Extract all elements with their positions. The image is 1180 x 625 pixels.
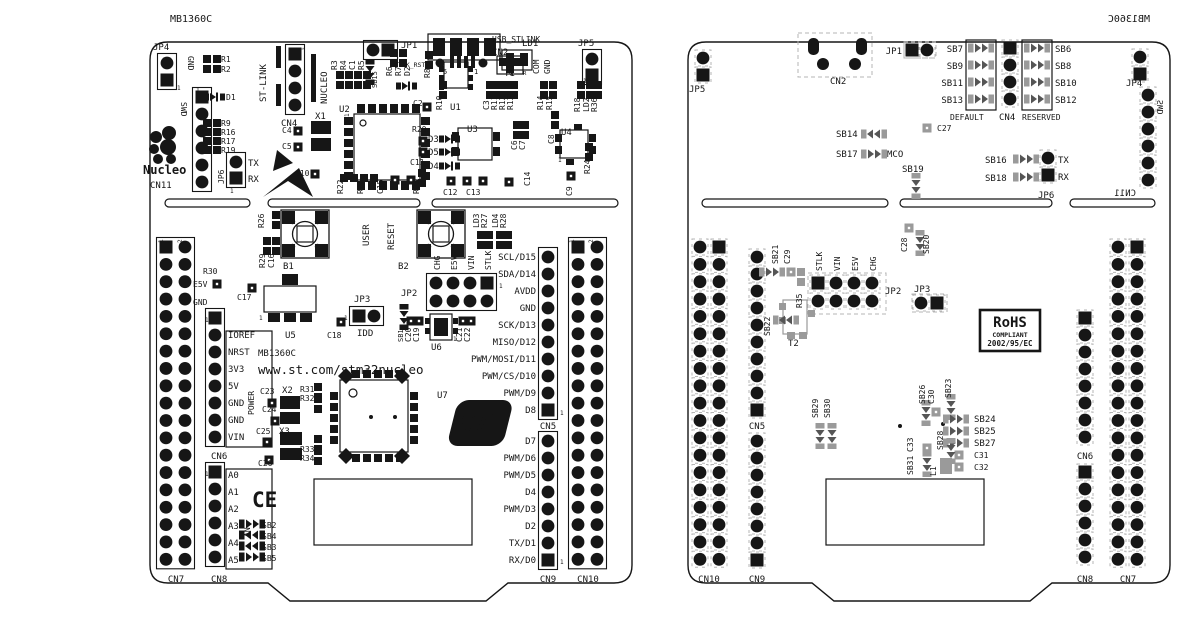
silk-label: 5V <box>228 382 239 392</box>
pin-hole <box>751 537 764 550</box>
component-shape <box>344 117 353 125</box>
silk-label: R30 <box>203 267 218 276</box>
silk-label: CN2 <box>492 48 508 58</box>
silk-label: RESET <box>387 222 397 250</box>
silk-label: 1 <box>177 85 181 92</box>
component-shape <box>493 147 500 156</box>
pin-hole <box>160 501 173 514</box>
capacitor-pad-icon <box>415 317 424 326</box>
pad-dot <box>462 320 464 322</box>
sb-pad <box>816 444 825 450</box>
pin-hole <box>866 295 879 308</box>
res-pad <box>521 121 529 129</box>
silk-label: C25 <box>256 427 271 436</box>
res-pad <box>314 447 322 455</box>
silk-label: D4 <box>525 488 536 498</box>
silk-label: D7 <box>525 437 536 447</box>
silk-label: GND <box>193 298 208 307</box>
capacitor-pad-icon <box>391 176 400 185</box>
component-shape <box>385 454 393 462</box>
board-slot <box>268 199 420 207</box>
component-shape <box>808 38 819 55</box>
pin-hole <box>179 501 192 514</box>
diode-pad <box>455 136 460 143</box>
component-shape <box>468 84 473 90</box>
pin-hole <box>591 258 604 271</box>
silk-label: SB9 <box>947 62 963 72</box>
pin-hole <box>289 99 302 112</box>
component-shape <box>453 318 458 324</box>
sb-pad <box>1024 44 1030 53</box>
pin-hole <box>713 345 726 358</box>
res-pad <box>486 81 494 89</box>
pin-1-square <box>931 297 944 310</box>
component-shape <box>555 146 562 154</box>
capacitor-pad-icon <box>423 103 432 112</box>
pin-1-square <box>906 44 919 57</box>
board-ref-label: MB1360C <box>258 349 296 359</box>
silk-label: R2 <box>221 65 231 74</box>
silk-label: X2 <box>282 386 293 396</box>
pin-hole <box>179 397 192 410</box>
pin-hole <box>179 536 192 549</box>
sb-pad <box>861 150 867 159</box>
pin-hole <box>572 379 585 392</box>
pad-dot <box>216 283 218 285</box>
silk-label: R19 <box>221 146 236 155</box>
res-pad <box>345 71 353 79</box>
pin-hole <box>591 362 604 375</box>
silk-label: A2 <box>228 505 239 515</box>
pin-hole <box>713 327 726 340</box>
silk-label: R21 <box>356 179 365 194</box>
pin-hole <box>713 466 726 479</box>
silk-label: 2 <box>588 239 595 243</box>
silk-label: C33 <box>906 437 915 452</box>
pad-dot <box>926 447 928 449</box>
silk-label: VIN <box>228 433 244 443</box>
button-pad <box>315 211 328 224</box>
silk-label: 1 <box>558 157 562 164</box>
pin-hole <box>289 65 302 78</box>
sb-pad <box>828 444 837 450</box>
silk-label: 1 <box>196 87 200 94</box>
pin-hole <box>542 469 555 482</box>
pin-hole <box>542 435 555 448</box>
pad-dot <box>271 402 273 404</box>
pin-hole <box>694 449 707 462</box>
silk-label: E5V <box>193 280 208 289</box>
pin-hole <box>179 466 192 479</box>
pin-hole <box>694 397 707 410</box>
silk-label: SB2 <box>262 521 277 530</box>
pin-hole <box>1131 466 1144 479</box>
component-shape <box>344 161 353 169</box>
component-dot <box>369 415 373 419</box>
silk-label: CN7 <box>1120 575 1136 585</box>
res-pad <box>354 81 362 89</box>
component-shape <box>434 318 448 336</box>
diode-bar <box>451 162 453 171</box>
pad-dot <box>426 106 428 108</box>
pad-dot <box>274 420 276 422</box>
sb-pad <box>968 78 974 87</box>
pin-hole <box>591 553 604 566</box>
component-shape <box>357 104 365 113</box>
pin-hole <box>1079 346 1092 359</box>
component-dot <box>162 126 176 140</box>
pin-hole <box>430 295 443 308</box>
pad-dot <box>466 180 468 182</box>
component-shape <box>330 425 338 433</box>
component-shape <box>276 84 281 106</box>
pin-1-square <box>481 277 494 290</box>
res-pad <box>213 146 221 154</box>
pin-hole <box>1112 536 1125 549</box>
silk-label: C14 <box>523 171 532 186</box>
pin-hole <box>751 353 764 366</box>
pin-hole <box>591 449 604 462</box>
silk-label: C24 <box>262 405 277 414</box>
board-url-label: www.st.com/stm32nucleo <box>258 362 424 377</box>
capacitor-pad-icon <box>479 177 488 186</box>
silk-label: C7 <box>518 140 527 150</box>
component-shape <box>799 332 807 339</box>
pad-dot <box>422 151 424 153</box>
pin-hole <box>1131 293 1144 306</box>
silk-label: SB19 <box>902 165 924 175</box>
component-shape <box>344 139 353 147</box>
pin-hole <box>713 397 726 410</box>
silk-label: PWM/D9 <box>503 389 536 399</box>
pin-hole <box>591 518 604 531</box>
silk-label: R4 <box>339 60 348 70</box>
pin-hole <box>542 486 555 499</box>
silk-label: CN8 <box>1077 575 1093 585</box>
silk-label: JP4 <box>1126 79 1142 89</box>
pin-hole <box>1112 275 1125 288</box>
component-dot <box>436 59 445 68</box>
pin-hole <box>591 501 604 514</box>
silk-label: POWER <box>247 391 256 415</box>
silk-label: R6 <box>385 66 394 76</box>
pin-hole <box>1131 345 1144 358</box>
pin-hole <box>572 275 585 288</box>
component-dot <box>479 59 488 68</box>
pin-hole <box>848 295 861 308</box>
sb-pad <box>964 427 970 436</box>
capacitor-pad-icon <box>213 280 222 289</box>
rohs-label: RoHS <box>993 315 1027 331</box>
pin-hole <box>1004 76 1017 89</box>
sb-pad <box>1024 95 1030 104</box>
silk-label: C12 <box>443 188 458 197</box>
component-shape <box>499 58 507 66</box>
silk-label: R33 <box>300 445 315 454</box>
pin-hole <box>209 397 222 410</box>
silk-label: SB5 <box>262 554 277 563</box>
res-pad <box>314 395 322 403</box>
silk-label: SB31 <box>906 456 915 475</box>
silk-label: 2 <box>177 239 184 243</box>
pcb-silkscreen-page: STMB1360CJP4GND1R1R2D1R9R16R17R191SWDNuc… <box>0 0 1180 625</box>
pin-hole <box>179 310 192 323</box>
pin-hole <box>572 293 585 306</box>
res-pad <box>797 278 805 286</box>
pin-hole <box>179 293 192 306</box>
component-shape <box>410 403 418 411</box>
pin-hole <box>713 536 726 549</box>
pin-hole <box>1131 484 1144 497</box>
pin-1-square <box>713 241 726 254</box>
res-pad <box>521 131 529 139</box>
pin-hole <box>1142 140 1155 153</box>
silk-label: 3V3 <box>228 365 244 375</box>
sb-pad <box>828 423 837 429</box>
pin-hole <box>209 363 222 376</box>
silk-label: CN9 <box>540 575 556 585</box>
silk-label: C1 <box>348 60 357 70</box>
pad-dot <box>418 320 420 322</box>
pin-hole <box>1112 518 1125 531</box>
pin-hole <box>1112 431 1125 444</box>
silk-label: D1 <box>226 93 236 102</box>
component-shape <box>284 313 296 322</box>
capacitor-pad-icon <box>248 284 257 293</box>
silk-label: CN9 <box>749 575 765 585</box>
pin-1-square <box>542 404 555 417</box>
pin-hole <box>160 431 173 444</box>
silk-label: A0 <box>228 471 239 481</box>
sb-pad <box>1034 173 1040 182</box>
pin-hole <box>591 466 604 479</box>
sb-pad <box>922 421 931 427</box>
silk-label: STLK <box>815 252 824 271</box>
pin-1-square <box>697 69 710 82</box>
silk-label: D3 <box>428 135 439 145</box>
pin-hole <box>572 518 585 531</box>
sb-pad <box>239 520 245 529</box>
pin-hole <box>713 258 726 271</box>
pin-hole <box>542 370 555 383</box>
pin-hole <box>196 159 209 172</box>
res-pad <box>585 143 593 151</box>
button-pad <box>282 244 295 257</box>
silk-label: U3 <box>467 125 478 135</box>
diode-pad <box>412 83 417 90</box>
sb-pad <box>916 230 925 236</box>
silk-label: 1 <box>560 559 564 566</box>
pin-hole <box>1112 553 1125 566</box>
silk-label: D5 <box>428 148 439 158</box>
pin-hole <box>572 414 585 427</box>
pin-hole <box>713 310 726 323</box>
silk-label: PWM/D6 <box>503 454 536 464</box>
pin-hole <box>572 397 585 410</box>
res-pad <box>502 81 510 89</box>
silk-label: JP6 <box>217 169 226 184</box>
capacitor-pad-icon <box>311 170 320 179</box>
silk-label: CN7 <box>168 575 184 585</box>
pin-hole <box>1112 501 1125 514</box>
silk-label: PWM/D5 <box>503 471 536 481</box>
silk-label: R24 <box>583 159 592 174</box>
res-pad <box>551 111 559 119</box>
silk-label: U7 <box>437 391 448 401</box>
pin-hole <box>1142 123 1155 136</box>
res-pad <box>439 81 447 89</box>
pin-hole <box>713 362 726 375</box>
sb-pad <box>794 316 800 325</box>
sb-pad <box>1013 155 1019 164</box>
pad-dot <box>410 320 412 322</box>
board-slot <box>165 199 250 207</box>
silk-label: R1 <box>221 55 231 64</box>
pin-hole <box>209 414 222 427</box>
capacitor-pad-icon <box>419 137 428 146</box>
silk-label: C15 <box>376 179 385 194</box>
pin-1-square <box>209 312 222 325</box>
pin-hole <box>542 537 555 550</box>
pin-hole <box>713 379 726 392</box>
silk-label: R23 <box>412 179 421 194</box>
capacitor-pad-icon <box>459 317 468 326</box>
res-pad <box>540 81 548 89</box>
pin-hole <box>694 379 707 392</box>
silk-label: SB16 <box>985 156 1007 166</box>
silk-label: IDD <box>357 329 373 339</box>
silk-label: C13 <box>466 188 481 197</box>
pin-hole <box>591 310 604 323</box>
res-pad <box>272 237 280 245</box>
silk-label: SB8 <box>1055 62 1071 72</box>
capacitor-pad-icon <box>905 224 914 233</box>
pin-1-square <box>1042 169 1055 182</box>
silk-label: A1 <box>228 488 239 498</box>
silk-label: CN10 <box>698 575 720 585</box>
pin-hole <box>1079 431 1092 444</box>
component-shape <box>520 53 528 66</box>
res-pad <box>586 81 594 89</box>
pin-hole <box>160 484 173 497</box>
silk-label: RX <box>1058 173 1069 183</box>
component-shape <box>282 274 298 285</box>
silk-label: NRST <box>228 348 250 358</box>
silk-label: STLK <box>484 251 493 270</box>
pin-1-square <box>1131 241 1144 254</box>
silk-label: CN6 <box>1077 452 1093 462</box>
component-shape <box>311 54 316 102</box>
res-pad <box>496 231 504 239</box>
sb-pad <box>1013 173 1019 182</box>
pin-hole <box>160 536 173 549</box>
silk-label: E5V <box>851 256 860 271</box>
pin-hole <box>160 397 173 410</box>
board-ref-label: MB1360C <box>170 14 212 25</box>
silk-label: C10 <box>295 169 310 178</box>
pin-hole <box>1131 379 1144 392</box>
pin-hole <box>179 275 192 288</box>
pin-1-square <box>751 404 764 417</box>
pin-hole <box>179 449 192 462</box>
ce-mark: CE <box>252 488 277 512</box>
front-board: STMB1360CJP4GND1R1R2D1R9R16R17R191SWDNuc… <box>143 14 632 601</box>
pin-hole <box>713 431 726 444</box>
pin-hole <box>694 431 707 444</box>
silk-label: 1 <box>344 113 351 117</box>
component-shape <box>410 436 418 444</box>
silk-label: GND <box>543 59 552 74</box>
pin-hole <box>1112 258 1125 271</box>
pin-hole <box>1079 397 1092 410</box>
silk-label: B1 <box>283 262 294 272</box>
capacitor-pad-icon <box>467 317 476 326</box>
silk-label: CN10 <box>577 575 599 585</box>
pin-hole <box>572 449 585 462</box>
pad-dot <box>958 454 960 456</box>
pin-hole <box>866 277 879 290</box>
pin-hole <box>572 536 585 549</box>
capacitor-pad-icon <box>567 172 576 181</box>
pin-hole <box>209 329 222 342</box>
res-pad <box>345 81 353 89</box>
silk-label: SCK/D13 <box>498 321 536 331</box>
res-pad <box>549 81 557 89</box>
component-shape <box>280 409 300 412</box>
silk-label: A5 <box>228 556 239 566</box>
silk-label: D4 <box>428 162 439 172</box>
silk-label: MISO/D12 <box>493 338 536 348</box>
pad-dot <box>508 181 510 183</box>
pin-hole <box>209 500 222 513</box>
res-pad <box>203 128 211 136</box>
silk-label: SB4 <box>262 532 277 541</box>
pin-hole <box>179 518 192 531</box>
res-pad <box>336 71 344 79</box>
sb-pad <box>1024 78 1030 87</box>
pin-hole <box>751 469 764 482</box>
pin-hole <box>179 431 192 444</box>
silk-label: DEFAULT <box>950 113 984 122</box>
pin-hole <box>1079 329 1092 342</box>
pin-1-square <box>353 310 366 323</box>
component-shape <box>330 414 338 422</box>
pin-hole <box>591 414 604 427</box>
component-shape <box>363 454 371 462</box>
silk-label: 1 <box>158 239 165 243</box>
rohs-directive-label: 2002/95/EC <box>987 339 1032 348</box>
component-shape <box>467 38 479 56</box>
pad-dot <box>482 180 484 182</box>
res-pad <box>336 81 344 89</box>
silk-label: AN <box>243 527 252 537</box>
pad-dot <box>908 227 910 229</box>
pad-dot <box>422 140 424 142</box>
pin-hole <box>572 501 585 514</box>
component-shape <box>368 181 376 190</box>
component-shape <box>808 310 815 317</box>
pin-hole <box>1142 157 1155 170</box>
component-shape <box>410 414 418 422</box>
silk-label: SB3 <box>262 543 277 552</box>
silk-label: SB14 <box>836 130 858 140</box>
board-slot <box>432 199 618 207</box>
res-pad <box>203 55 211 63</box>
res-pad <box>551 121 559 129</box>
pad-dot <box>251 287 253 289</box>
pin-hole <box>179 379 192 392</box>
pin-hole <box>591 379 604 392</box>
